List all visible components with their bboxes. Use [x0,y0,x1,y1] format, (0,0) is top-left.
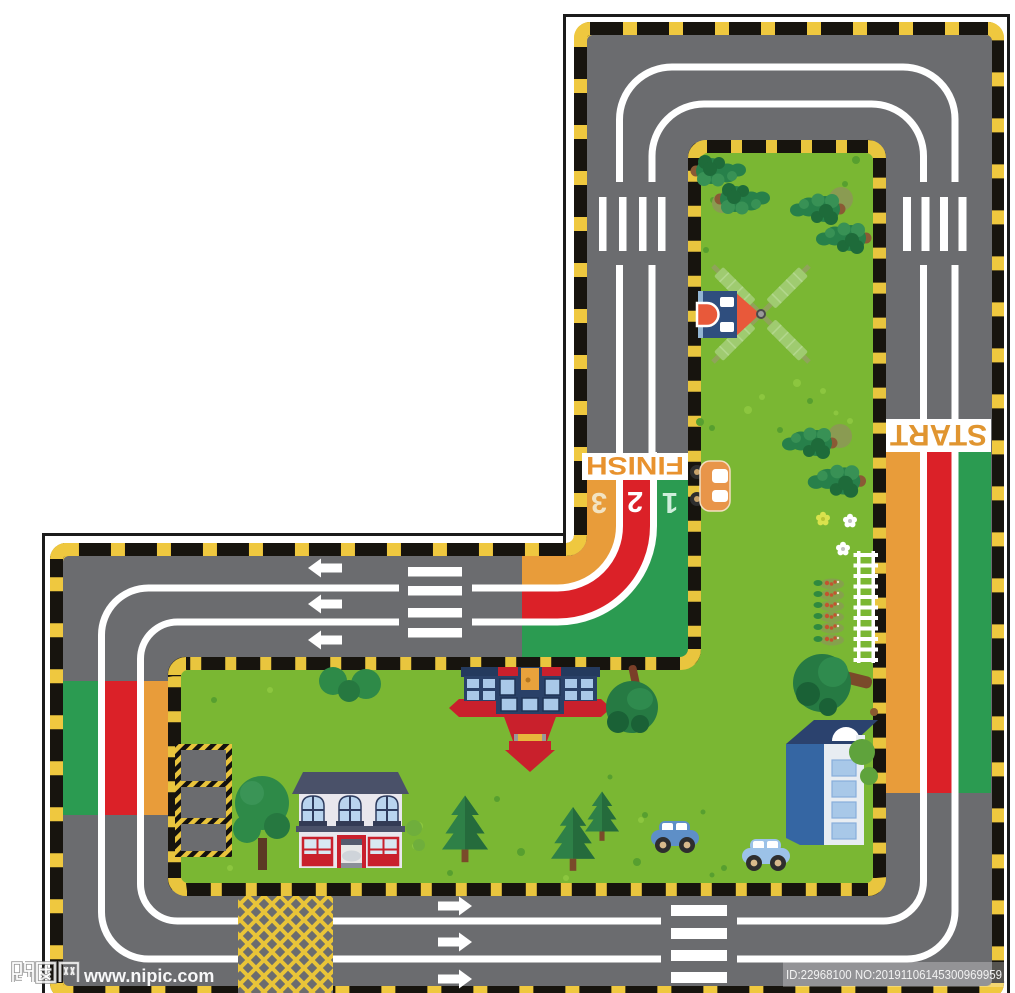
svg-text:START: START [890,418,987,451]
svg-text:1: 1 [662,486,678,518]
svg-text:2: 2 [627,485,643,517]
svg-text:ID:22968100 NO:201911061453009: ID:22968100 NO:20191106145300969959 [786,967,1002,982]
svg-text:www.nipic.com: www.nipic.com [83,966,214,986]
svg-text:3: 3 [591,486,607,518]
svg-text:FINISH: FINISH [586,451,684,479]
